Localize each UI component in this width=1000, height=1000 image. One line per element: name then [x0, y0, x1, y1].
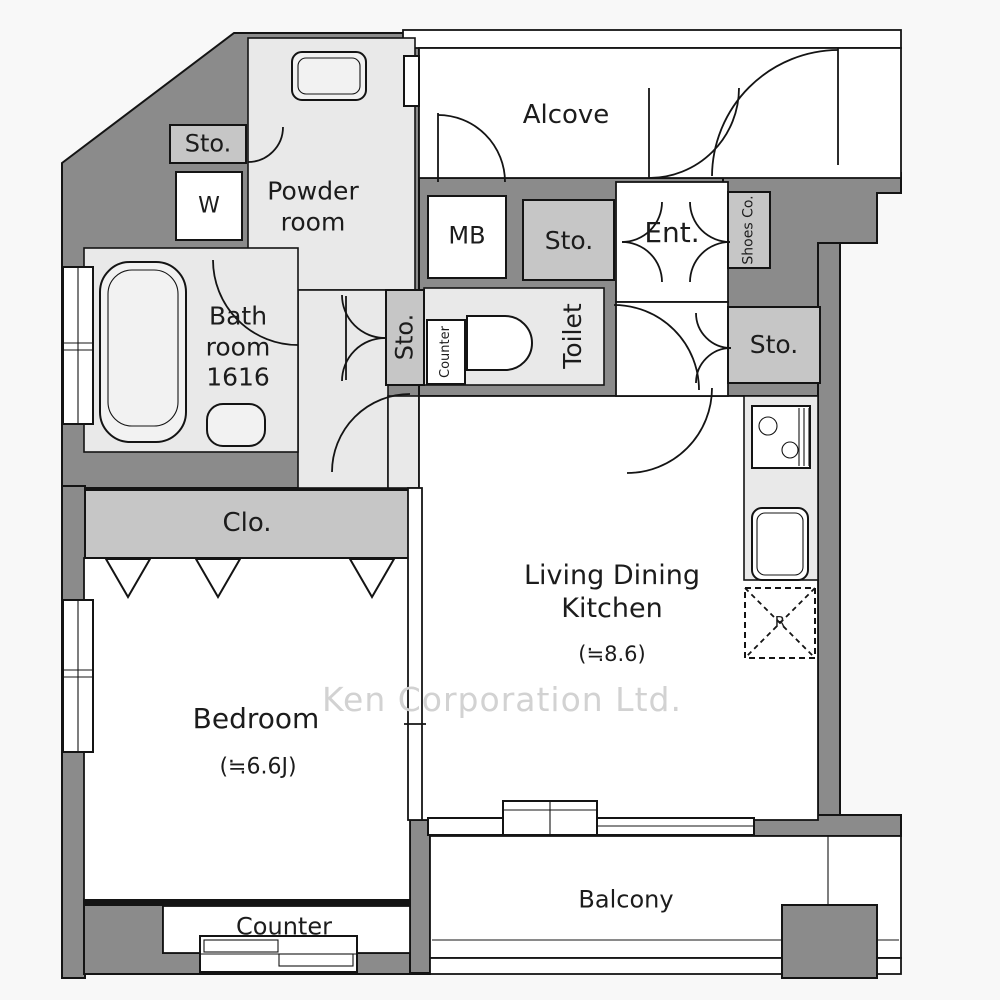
- label-counter-bedroom: Counter: [236, 912, 332, 941]
- kitchen-sink: [752, 508, 808, 580]
- corridor-top-strip: [403, 30, 901, 48]
- label-balcony: Balcony: [578, 885, 673, 914]
- label-washing-machine: W: [198, 194, 220, 221]
- powder-window: [404, 56, 419, 106]
- alcove-floor: [419, 48, 901, 178]
- label-alcove: Alcove: [523, 100, 610, 132]
- label-storage-top-left: Sto.: [185, 129, 232, 158]
- label-bedroom: Bedroom: [193, 702, 320, 736]
- wall-right: [818, 243, 840, 835]
- label-entrance: Ent.: [644, 216, 699, 250]
- label-ldk-size: (≒8.6): [578, 642, 645, 668]
- floor-plan: Ken Corporation Ltd. Sto. W Powder room …: [0, 0, 1000, 1000]
- label-bedroom-size: (≒6.6J): [219, 755, 296, 782]
- entrance-hallway-floor: [616, 302, 728, 396]
- label-powder-room: Powder room: [248, 177, 378, 238]
- label-shoes-cabinet: Shoes Co.: [740, 195, 757, 264]
- toilet-bowl: [467, 316, 532, 370]
- bedroom-bottom-wall: [84, 899, 410, 906]
- bedroom-ldk-partition: [408, 488, 422, 820]
- wall-stub-counter-balcony: [410, 820, 430, 973]
- floor-plan-drawing: [0, 0, 1000, 1000]
- label-closet: Clo.: [222, 508, 271, 540]
- label-storage-entrance: Sto.: [545, 226, 593, 257]
- label-storage-hall: Sto.: [390, 314, 419, 361]
- label-bathroom: Bath room 1616: [192, 301, 284, 393]
- powder-vanity: [292, 52, 366, 100]
- label-living-dining-kitchen: Living Dining Kitchen: [487, 560, 737, 626]
- label-toilet: Toilet: [558, 303, 589, 368]
- label-refrigerator: R: [775, 613, 785, 631]
- label-storage-kitchen: Sto.: [750, 330, 798, 361]
- hall-floor: [298, 290, 388, 488]
- bathtub: [100, 262, 186, 442]
- label-counter-hall: Counter: [438, 326, 454, 378]
- watermark: Ken Corporation Ltd.: [322, 680, 682, 720]
- stove: [752, 406, 810, 468]
- hall-floor-ext: [388, 396, 419, 488]
- bathroom-sink: [207, 404, 265, 446]
- balcony-pillar: [782, 905, 877, 978]
- label-meter-box: MB: [448, 221, 485, 250]
